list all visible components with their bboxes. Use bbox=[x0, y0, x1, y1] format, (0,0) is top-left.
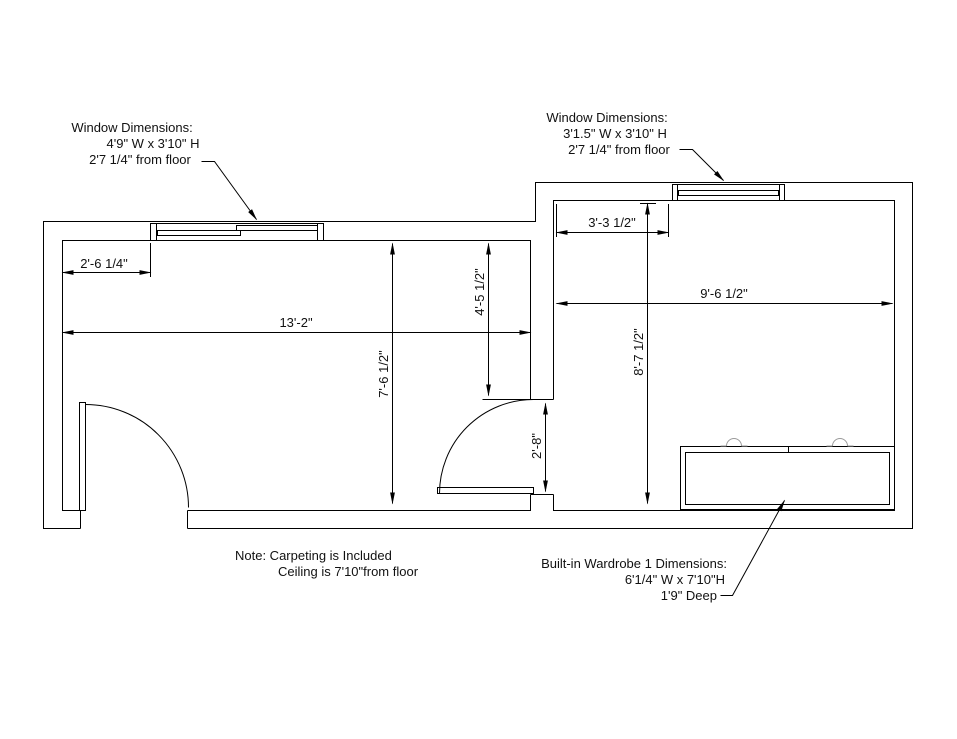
floor-plan-drawing: 2'-6 1/4" 13'-2" 3'-3 1/2" 9'-6 1/2" 7'-… bbox=[0, 0, 957, 739]
note-line: Note: Carpeting is Included bbox=[235, 548, 392, 563]
wardrobe-handle-icon bbox=[721, 439, 748, 446]
inner-walls-left-room bbox=[63, 241, 531, 529]
dimension-right-room-width: 9'-6 1/2" bbox=[557, 286, 893, 304]
leader-window-right bbox=[680, 150, 724, 181]
dimension-wall-to-window-right: 3'-3 1/2" bbox=[557, 204, 669, 237]
dimension-partition-wall-upper: 4'-5 1/2" bbox=[472, 244, 489, 396]
annotation-line: 1'9" Deep bbox=[661, 588, 717, 603]
annotation-line: 6'1/4" W x 7'10"H bbox=[625, 572, 725, 587]
dimension-label: 3'-3 1/2" bbox=[588, 215, 636, 230]
leader-window-left bbox=[202, 162, 257, 220]
annotation-line: Built-in Wardrobe 1 Dimensions: bbox=[541, 556, 727, 571]
note-line: Ceiling is 7'10"from floor bbox=[278, 564, 419, 579]
annotation-line: Window Dimensions: bbox=[71, 120, 192, 135]
dimension-left-room-depth: 7'-6 1/2" bbox=[376, 244, 393, 504]
dimension-wall-to-window-left: 2'-6 1/4" bbox=[63, 243, 151, 277]
annotation-line: 2'7 1/4" from floor bbox=[89, 152, 191, 167]
annotation-window-right: Window Dimensions: 3'1.5" W x 3'10" H 2'… bbox=[546, 110, 670, 157]
wardrobe-handle-icon bbox=[827, 439, 854, 446]
inner-walls-right-room bbox=[531, 201, 895, 511]
annotation-note: Note: Carpeting is Included Ceiling is 7… bbox=[235, 548, 419, 579]
dimension-label: 2'-8" bbox=[529, 433, 544, 459]
annotation-wardrobe: Built-in Wardrobe 1 Dimensions: 6'1/4" W… bbox=[541, 556, 727, 603]
dimension-label: 4'-5 1/2" bbox=[472, 268, 487, 316]
dimension-label: 8'-7 1/2" bbox=[631, 328, 646, 376]
annotation-line: Window Dimensions: bbox=[546, 110, 667, 125]
dimension-label: 2'-6 1/4" bbox=[80, 256, 128, 271]
annotation-window-left: Window Dimensions: 4'9" W x 3'10" H 2'7 … bbox=[71, 120, 199, 167]
window-right bbox=[673, 185, 785, 201]
dimension-label: 13'-2" bbox=[279, 315, 313, 330]
interior-door bbox=[438, 400, 534, 494]
dimension-door-opening: 2'-8" bbox=[483, 400, 546, 492]
floor-plan-canvas: 2'-6 1/4" 13'-2" 3'-3 1/2" 9'-6 1/2" 7'-… bbox=[0, 0, 957, 739]
annotation-line: 4'9" W x 3'10" H bbox=[107, 136, 200, 151]
annotation-line: 3'1.5" W x 3'10" H bbox=[563, 126, 667, 141]
window-left bbox=[151, 224, 324, 241]
dimension-right-room-depth: 8'-7 1/2" bbox=[631, 204, 656, 504]
dimension-label: 9'-6 1/2" bbox=[700, 286, 748, 301]
entry-door bbox=[80, 403, 189, 511]
leader-wardrobe bbox=[721, 501, 785, 596]
built-in-wardrobe bbox=[681, 439, 895, 510]
outer-walls bbox=[44, 183, 913, 529]
dimension-label: 7'-6 1/2" bbox=[376, 350, 391, 398]
dimension-left-room-width: 13'-2" bbox=[63, 315, 531, 333]
annotation-line: 2'7 1/4" from floor bbox=[568, 142, 670, 157]
